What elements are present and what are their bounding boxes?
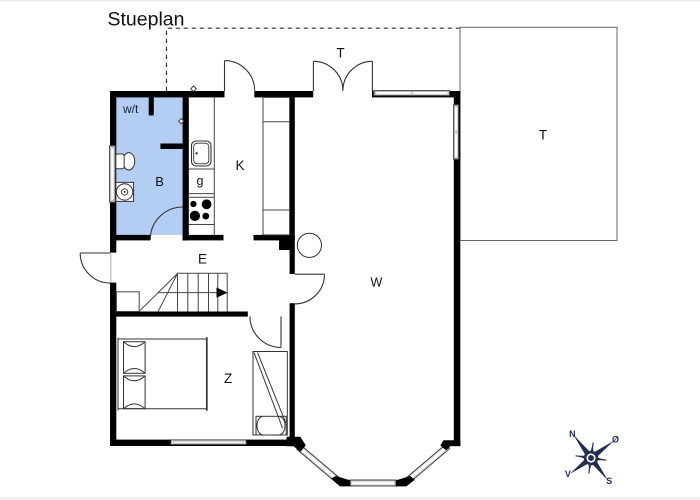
svg-text:w/t: w/t bbox=[122, 102, 139, 116]
svg-text:Stueplan: Stueplan bbox=[108, 9, 185, 31]
svg-text:W: W bbox=[371, 276, 383, 290]
svg-text:T: T bbox=[539, 128, 547, 143]
svg-text:S: S bbox=[606, 476, 612, 486]
svg-text:E: E bbox=[198, 251, 207, 266]
svg-text:N: N bbox=[569, 429, 576, 439]
svg-text:g: g bbox=[197, 174, 204, 188]
svg-text:B: B bbox=[155, 174, 164, 189]
svg-text:Z: Z bbox=[224, 371, 232, 386]
svg-text:V: V bbox=[565, 469, 571, 479]
svg-text:K: K bbox=[236, 158, 245, 173]
svg-text:T: T bbox=[336, 46, 344, 61]
svg-text:Ø: Ø bbox=[612, 435, 619, 445]
